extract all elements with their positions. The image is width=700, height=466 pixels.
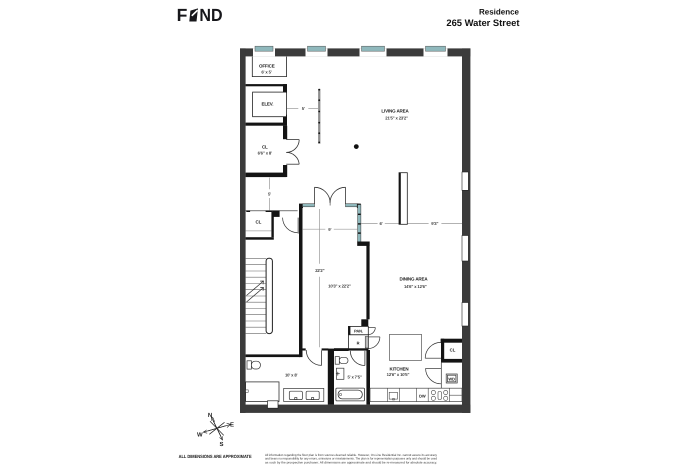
svg-text:12'6" x 10'5": 12'6" x 10'5" <box>387 372 410 377</box>
svg-text:OFFICE: OFFICE <box>259 63 275 68</box>
svg-text:W: W <box>197 432 203 439</box>
svg-text:5' x 7'5": 5' x 7'5" <box>347 375 361 380</box>
svg-text:10' x 8': 10' x 8' <box>285 372 298 377</box>
svg-text:265 Water Street: 265 Water Street <box>446 17 519 28</box>
svg-text:ELEV.: ELEV. <box>261 101 273 106</box>
svg-text:R: R <box>357 341 360 346</box>
svg-text:CL: CL <box>256 220 262 225</box>
svg-text:14'6" x 12'6": 14'6" x 12'6" <box>404 284 427 289</box>
svg-text:N: N <box>208 412 212 419</box>
svg-text:6': 6' <box>379 221 382 226</box>
svg-text:9'3": 9'3" <box>431 221 438 226</box>
svg-text:5': 5' <box>268 191 271 196</box>
svg-text:CL: CL <box>262 145 268 150</box>
svg-text:Residence: Residence <box>479 8 520 17</box>
svg-text:as such by the prospective pur: as such by the prospective purchaser. Al… <box>265 460 437 464</box>
svg-text:ND: ND <box>199 5 222 25</box>
svg-text:WD: WD <box>448 376 455 381</box>
svg-text:10'3" x 22'2": 10'3" x 22'2" <box>328 284 351 289</box>
svg-text:E: E <box>230 422 234 429</box>
svg-text:22'2": 22'2" <box>315 268 324 273</box>
svg-text:LIVING AREA: LIVING AREA <box>381 108 409 113</box>
svg-text:9': 9' <box>328 227 331 232</box>
svg-text:KITCHEN: KITCHEN <box>390 367 409 372</box>
svg-text:DINING AREA: DINING AREA <box>400 276 429 281</box>
svg-text:5': 5' <box>302 106 305 111</box>
svg-text:S: S <box>219 441 223 448</box>
svg-text:CL: CL <box>450 348 456 353</box>
svg-text:DW: DW <box>419 393 426 398</box>
svg-text:6' x 5': 6' x 5' <box>261 70 271 75</box>
svg-text:F: F <box>177 5 188 25</box>
svg-text:21'5" x 23'2": 21'5" x 23'2" <box>385 116 408 121</box>
svg-text:6'6" x 8': 6'6" x 8' <box>258 151 272 156</box>
svg-text:ALL DIMENSIONS ARE APPROXIMATE: ALL DIMENSIONS ARE APPROXIMATE <box>179 454 252 459</box>
svg-text:PAN.: PAN. <box>354 328 363 333</box>
